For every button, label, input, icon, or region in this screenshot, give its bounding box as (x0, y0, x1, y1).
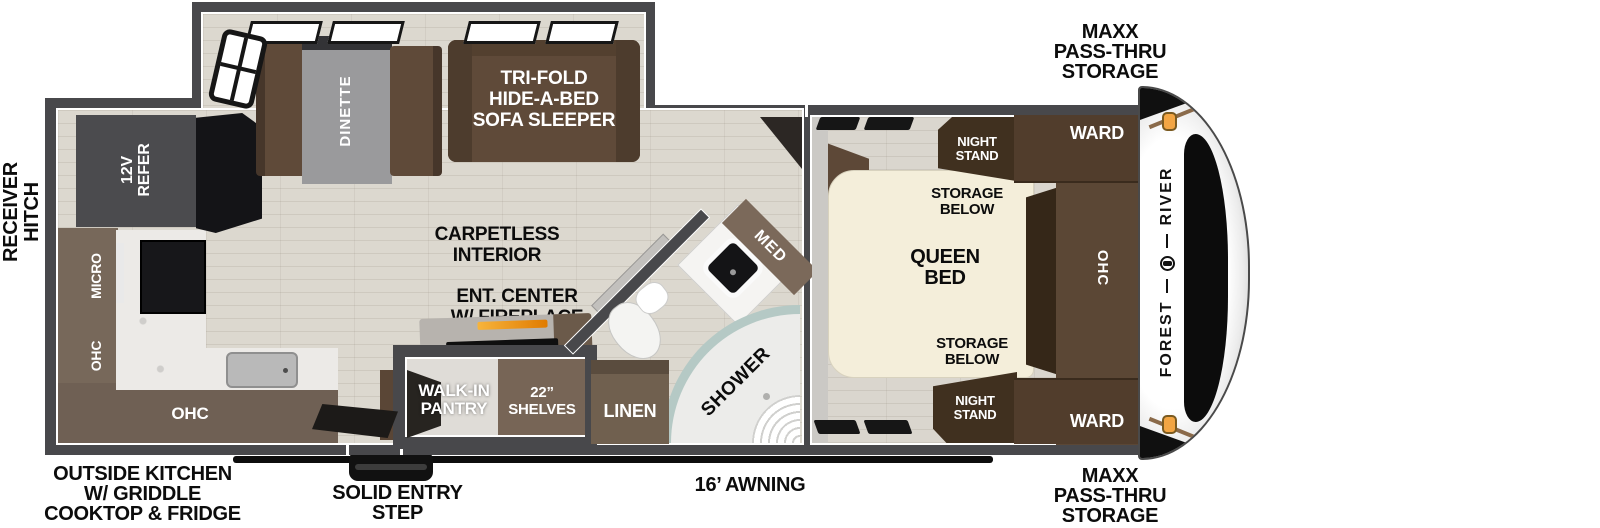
dinette-bench-right (390, 46, 442, 176)
refrigerator-side (196, 113, 262, 233)
label-awning: 16’ AWNING (675, 475, 825, 496)
label-maxx-pass-thru-top: MAXX PASS-THRU STORAGE (1030, 22, 1190, 82)
bedroom-window-top-2 (864, 117, 915, 130)
kitchen-sink (226, 352, 298, 388)
rv-floorplan: RECEIVER HITCH MAXX PASS-THRU STORAGE MA… (0, 0, 1600, 528)
kitchen-microwave (116, 243, 124, 303)
label-dinette: DINETTE (338, 66, 356, 156)
fireplace-glow (477, 320, 547, 330)
brand-word-river: RIVER (1158, 167, 1176, 226)
label-ohc-kitchen-lower: OHC (160, 405, 220, 425)
label-walk-in-pantry: WALK-IN PANTRY (402, 382, 506, 418)
kitchen-faucet (283, 368, 288, 373)
label-22-shelves: 22” SHELVES (500, 384, 584, 418)
label-ohc-bedroom: OHC (1092, 241, 1110, 295)
label-sofa: TRI-FOLD HIDE-A-BED SOFA SLEEPER (448, 68, 640, 131)
label-storage-below-top: STORAGE BELOW (912, 186, 1022, 218)
label-micro: MICRO (89, 241, 107, 311)
label-storage-below-bottom: STORAGE BELOW (917, 336, 1027, 368)
label-carpetless: CARPETLESS INTERIOR (407, 224, 587, 266)
awning-line (233, 456, 993, 463)
slide-window-2 (327, 21, 405, 44)
label-ohc-kitchen-wall: OHC (89, 331, 107, 381)
linen-cabinet-lid (591, 360, 669, 374)
cap-marker-light-top (1162, 112, 1177, 131)
cap-windshield (1184, 134, 1228, 422)
logo-inner-mark (1163, 261, 1172, 266)
entry-step (349, 451, 433, 481)
label-ward-top: WARD (1056, 124, 1138, 143)
label-ward-bottom: WARD (1056, 412, 1138, 431)
bedroom-wall-seam (805, 105, 808, 117)
forest-river-brand: FOREST RIVER (1154, 147, 1180, 397)
shower-drain (763, 393, 770, 400)
bedroom-window-bottom-1 (813, 420, 860, 434)
label-maxx-pass-thru-bottom: MAXX PASS-THRU STORAGE (1030, 466, 1190, 526)
label-linen: LINEN (591, 402, 669, 421)
brand-word-forest: FOREST (1158, 301, 1176, 378)
label-receiver-hitch: RECEIVER HITCH (1, 137, 45, 287)
forest-river-logo-icon (1160, 256, 1175, 271)
label-queen-bed: QUEEN BED (890, 247, 1000, 289)
label-solid-entry-step: SOLID ENTRY STEP (320, 483, 475, 523)
bedroom-window-top-1 (816, 117, 861, 130)
bedroom-entry-strip (812, 117, 828, 443)
entry-step-tread (355, 464, 427, 470)
slide-window-4 (545, 21, 619, 44)
label-outside-kitchen: OUTSIDE KITCHEN W/ GRIDDLE COOKTOP & FRI… (30, 464, 255, 524)
label-refer: 12V REFER (117, 115, 157, 225)
kitchen-cabinet-face-bottom (116, 390, 338, 443)
bedroom-window-bottom-2 (863, 420, 912, 434)
brand-dash-2 (1166, 234, 1168, 248)
entry-door-seam-left (346, 443, 349, 455)
vanity-faucet (729, 268, 737, 276)
cap-marker-light-bottom (1162, 415, 1177, 434)
slide-window-3 (463, 21, 541, 44)
kitchen-range (140, 240, 206, 314)
brand-dash-1 (1166, 279, 1168, 293)
